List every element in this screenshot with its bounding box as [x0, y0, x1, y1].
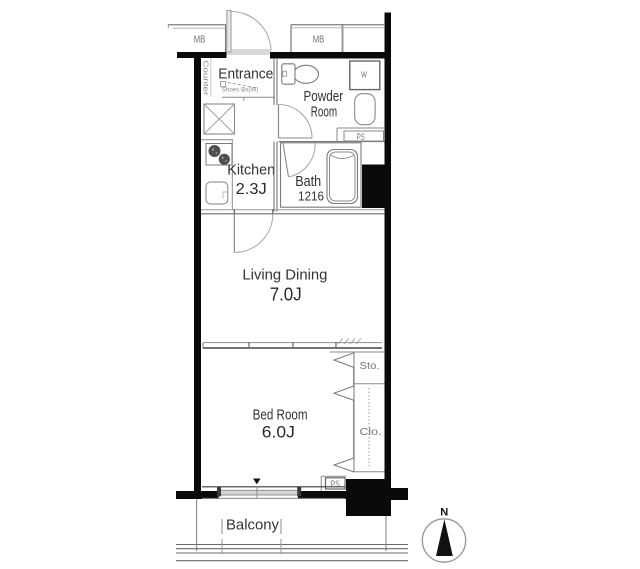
- svg-text:Shoes Bx(W): Shoes Bx(W): [222, 87, 259, 93]
- svg-text:Counter: Counter: [202, 60, 209, 96]
- svg-text:Sto.: Sto.: [360, 360, 380, 372]
- svg-text:Entrance: Entrance: [218, 66, 273, 82]
- svg-text:N: N: [440, 506, 448, 518]
- svg-text:MB: MB: [313, 35, 325, 46]
- svg-text:Bed Room: Bed Room: [253, 408, 308, 424]
- svg-text:Kitchen: Kitchen: [227, 162, 275, 178]
- svg-text:PS: PS: [357, 132, 365, 142]
- svg-text:Bath: Bath: [295, 174, 321, 190]
- svg-text:W: W: [361, 70, 367, 79]
- svg-text:6.0J: 6.0J: [262, 424, 295, 442]
- svg-text:Living Dining: Living Dining: [242, 267, 327, 284]
- svg-text:1216: 1216: [298, 189, 324, 204]
- svg-text:Clo.: Clo.: [360, 426, 382, 438]
- svg-text:Room: Room: [311, 104, 337, 120]
- svg-text:MB: MB: [194, 35, 206, 46]
- svg-text:7.0J: 7.0J: [270, 285, 302, 305]
- svg-text:Balcony: Balcony: [226, 518, 280, 534]
- svg-text:2.3J: 2.3J: [236, 181, 267, 198]
- svg-text:Powder: Powder: [303, 89, 343, 105]
